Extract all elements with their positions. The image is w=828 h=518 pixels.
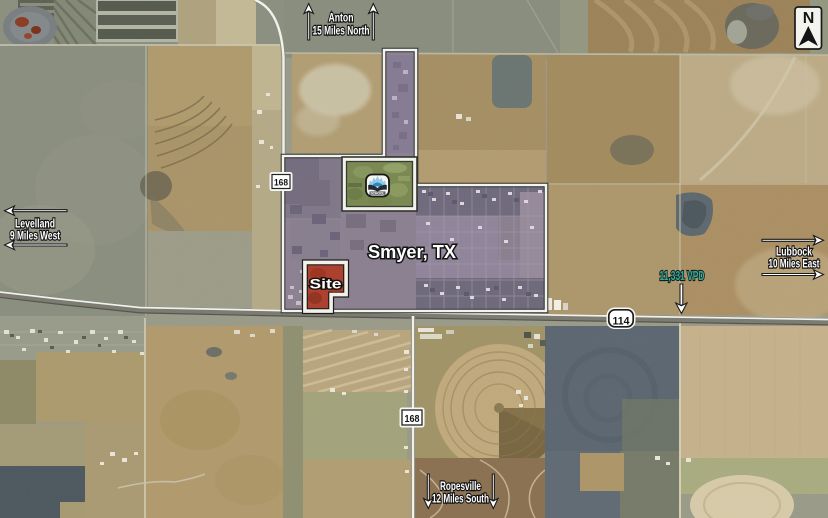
svg-text:9 Miles West: 9 Miles West [10, 229, 60, 243]
svg-text:10 Miles East: 10 Miles East [769, 257, 820, 271]
svg-text:11,331 VPD: 11,331 VPD [660, 269, 705, 283]
svg-text:N: N [803, 10, 815, 27]
svg-text:Anton: Anton [329, 11, 354, 25]
svg-text:Smyer, TX: Smyer, TX [368, 241, 457, 262]
svg-text:SCHOOL: SCHOOL [371, 192, 385, 196]
svg-text:15 Miles North: 15 Miles North [313, 24, 370, 38]
svg-text:12 Miles South: 12 Miles South [432, 491, 489, 505]
svg-text:Site: Site [310, 277, 343, 292]
svg-text:168: 168 [274, 177, 288, 188]
svg-text:168: 168 [405, 414, 420, 425]
svg-text:114: 114 [613, 315, 631, 327]
